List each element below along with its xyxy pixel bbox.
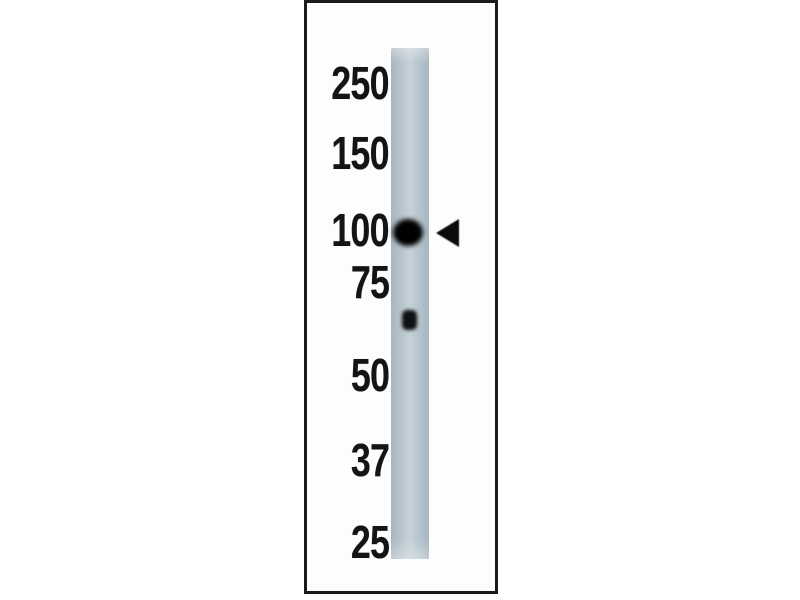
marker-label-250: 250 [331, 60, 389, 106]
marker-label-75: 75 [351, 259, 389, 305]
marker-label-37: 37 [351, 437, 389, 483]
protein-band-100kda [393, 219, 423, 246]
marker-label-50: 50 [351, 352, 389, 398]
marker-label-25: 25 [351, 519, 389, 565]
marker-lane [391, 48, 429, 559]
marker-label-150: 150 [331, 130, 389, 176]
arrowhead-icon [436, 219, 459, 247]
marker-label-100: 100 [331, 207, 389, 253]
protein-band-65kda [402, 310, 417, 330]
figure-root: 250 150 100 75 50 37 25 [0, 0, 800, 600]
